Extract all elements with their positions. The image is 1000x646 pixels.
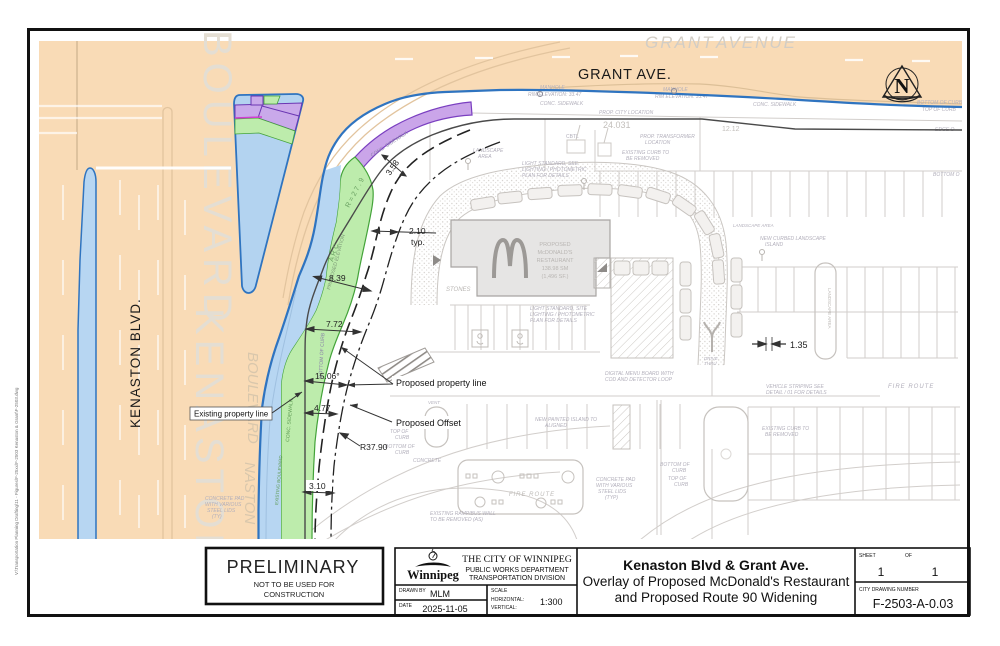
svg-text:TO BE REMOVED (AS): TO BE REMOVED (AS) <box>430 517 483 523</box>
svg-text:PROP. CITY LOCATION: PROP. CITY LOCATION <box>599 110 654 116</box>
svg-text:LANDSCAPE AREA: LANDSCAPE AREA <box>733 223 774 228</box>
svg-text:AREA: AREA <box>477 154 492 160</box>
svg-text:CBTL: CBTL <box>566 134 579 140</box>
svg-text:and Proposed Route 90 Widening: and Proposed Route 90 Widening <box>615 590 818 605</box>
svg-text:OF: OF <box>905 553 912 559</box>
svg-text:CURB: CURB <box>395 450 410 456</box>
svg-text:BE REMOVED: BE REMOVED <box>765 432 799 438</box>
svg-text:TRANSPORTATION DIVISION: TRANSPORTATION DIVISION <box>469 575 565 582</box>
svg-text:THRU: THRU <box>704 361 717 366</box>
svg-text:CONC. SIDEWALK: CONC. SIDEWALK <box>540 101 584 107</box>
svg-text:Proposed property line: Proposed property line <box>396 378 487 388</box>
svg-text:DRAWN BY: DRAWN BY <box>399 588 426 594</box>
svg-text:N: N <box>894 74 909 98</box>
svg-text:12.12: 12.12 <box>722 126 740 133</box>
svg-text:1: 1 <box>932 565 939 579</box>
svg-text:2.10: 2.10 <box>409 226 426 236</box>
svg-text:TOP OF CURB: TOP OF CURB <box>922 107 956 113</box>
svg-text:LANDSCAPE AREA: LANDSCAPE AREA <box>827 288 832 329</box>
svg-text:1: 1 <box>878 565 885 579</box>
svg-text:RIM ELEVATION: 33.47: RIM ELEVATION: 33.47 <box>528 92 581 98</box>
svg-text:(TYP): (TYP) <box>605 495 618 501</box>
svg-text:1:300: 1:300 <box>540 597 563 607</box>
svg-text:CONC. SIDEWALK: CONC. SIDEWALK <box>753 102 797 108</box>
svg-text:R37.90: R37.90 <box>360 442 388 452</box>
svg-text:NASTON: NASTON <box>241 462 258 524</box>
svg-text:CITY DRAWING NUMBER: CITY DRAWING NUMBER <box>859 587 919 593</box>
svg-text:SCALE: SCALE <box>491 588 508 594</box>
svg-text:Existing property line: Existing property line <box>194 410 269 419</box>
svg-text:NOT TO BE USED FOR: NOT TO BE USED FOR <box>254 580 335 589</box>
svg-text:ISLAND: ISLAND <box>765 242 783 248</box>
svg-text:MLM: MLM <box>430 589 450 599</box>
svg-text:RESTAURANT: RESTAURANT <box>537 258 575 264</box>
svg-text:SHEET: SHEET <box>859 553 876 559</box>
svg-text:THE CITY OF WINNIPEG: THE CITY OF WINNIPEG <box>462 554 572 565</box>
svg-text:Proposed Offset: Proposed Offset <box>396 418 461 428</box>
svg-text:(TY): (TY) <box>212 514 222 520</box>
svg-text:HORIZONTAL:: HORIZONTAL: <box>491 597 524 603</box>
svg-text:8.39: 8.39 <box>329 273 346 283</box>
svg-text:KENASTON BLVD.: KENASTON BLVD. <box>128 298 143 428</box>
svg-text:COD AND DETECTOR LOOP: COD AND DETECTOR LOOP <box>605 377 673 383</box>
svg-text:BE REMOVED: BE REMOVED <box>626 156 660 162</box>
svg-text:PUBLIC WORKS DEPARTMENT: PUBLIC WORKS DEPARTMENT <box>465 567 569 574</box>
svg-text:4.77: 4.77 <box>314 403 331 413</box>
svg-text:BOULEVARD: BOULEVARD <box>195 30 239 328</box>
svg-text:Overlay of Proposed McDonald's: Overlay of Proposed McDonald's Restauran… <box>583 574 850 589</box>
svg-text:AVENUE: AVENUE <box>715 33 797 52</box>
svg-text:LOCATION: LOCATION <box>645 140 671 146</box>
svg-text:DATE: DATE <box>399 603 413 609</box>
svg-text:3.10: 3.10 <box>309 481 326 491</box>
svg-text:STONES: STONES <box>446 287 471 293</box>
svg-text:VENT: VENT <box>428 400 441 405</box>
svg-text:138.98 SM: 138.98 SM <box>542 266 569 272</box>
svg-text:GRANT AVE.: GRANT AVE. <box>578 67 672 83</box>
svg-text:BOTTOM O: BOTTOM O <box>933 172 960 178</box>
svg-text:PLAN FOR DETAILS: PLAN FOR DETAILS <box>522 173 570 179</box>
svg-text:PROPOSED: PROPOSED <box>539 242 570 248</box>
svg-text:3.58: 3.58 <box>383 158 401 178</box>
svg-text:DETAIL / 01 FOR DETAILS: DETAIL / 01 FOR DETAILS <box>766 390 827 396</box>
svg-text:FIRE ROUTE: FIRE ROUTE <box>509 492 555 498</box>
svg-text:McDONALD'S: McDONALD'S <box>538 250 573 256</box>
svg-text:CONSTRUCTION: CONSTRUCTION <box>264 590 324 599</box>
svg-text:VERTICAL:: VERTICAL: <box>491 605 517 611</box>
svg-text:(1,496 SF.): (1,496 SF.) <box>542 274 569 280</box>
svg-text:2025-11-05: 2025-11-05 <box>422 604 467 614</box>
svg-text:15.06°: 15.06° <box>315 371 340 381</box>
svg-text:GRANT: GRANT <box>645 33 715 52</box>
svg-text:typ.: typ. <box>411 237 425 247</box>
svg-text:FIRE ROUTE: FIRE ROUTE <box>888 384 934 390</box>
svg-text:PLAN FOR DETAILS: PLAN FOR DETAILS <box>530 318 578 324</box>
svg-text:CURB: CURB <box>672 468 687 474</box>
svg-text:7.72: 7.72 <box>326 319 343 329</box>
svg-text:Kenaston Blvd & Grant Ave.: Kenaston Blvd & Grant Ave. <box>623 557 809 573</box>
svg-text:V:\Transportation Planning Dra: V:\Transportation Planning Drafting\11 -… <box>14 387 19 575</box>
svg-text:PRELIMINARY: PRELIMINARY <box>227 557 360 577</box>
svg-text:BOULEVARD: BOULEVARD <box>244 352 261 444</box>
svg-text:24.031: 24.031 <box>603 120 631 130</box>
svg-text:CURB: CURB <box>395 435 410 441</box>
svg-text:CONCRETE: CONCRETE <box>413 458 442 464</box>
svg-text:F-2503-A-0.03: F-2503-A-0.03 <box>873 597 954 611</box>
svg-text:Winnipeg: Winnipeg <box>407 568 460 582</box>
svg-text:CURB: CURB <box>674 482 689 488</box>
svg-text:KENASTON: KENASTON <box>187 308 231 567</box>
svg-text:1.35: 1.35 <box>790 340 808 350</box>
svg-text:ALIGNED: ALIGNED <box>544 423 567 429</box>
